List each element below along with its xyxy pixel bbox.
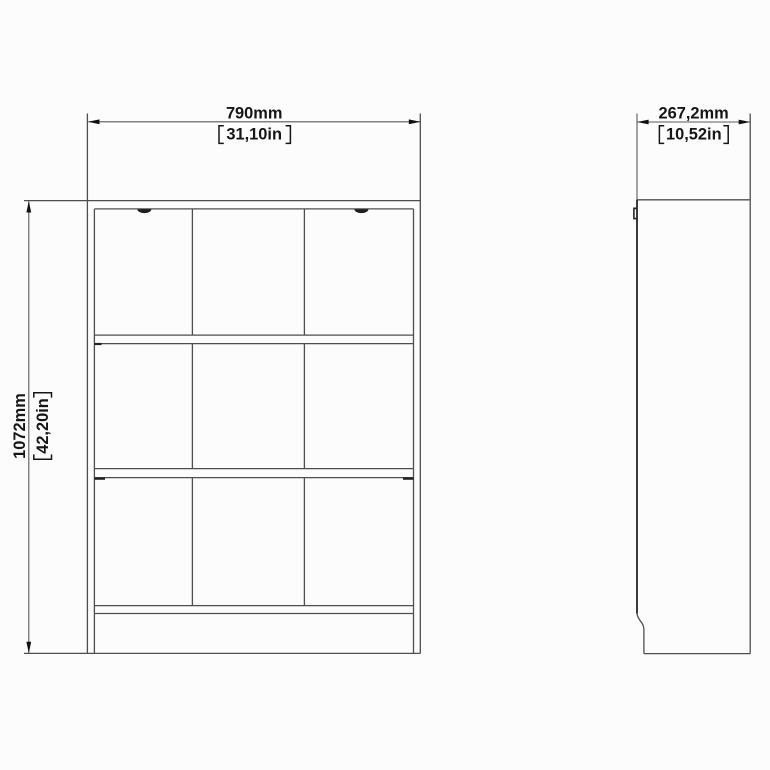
svg-text:10,52in: 10,52in — [666, 125, 722, 143]
svg-text:790mm: 790mm — [226, 105, 283, 123]
svg-text:31,10in: 31,10in — [226, 125, 282, 143]
svg-text:267,2mm: 267,2mm — [659, 104, 729, 122]
svg-text:1072mm: 1072mm — [11, 393, 29, 459]
svg-text:42,20in: 42,20in — [34, 398, 52, 454]
